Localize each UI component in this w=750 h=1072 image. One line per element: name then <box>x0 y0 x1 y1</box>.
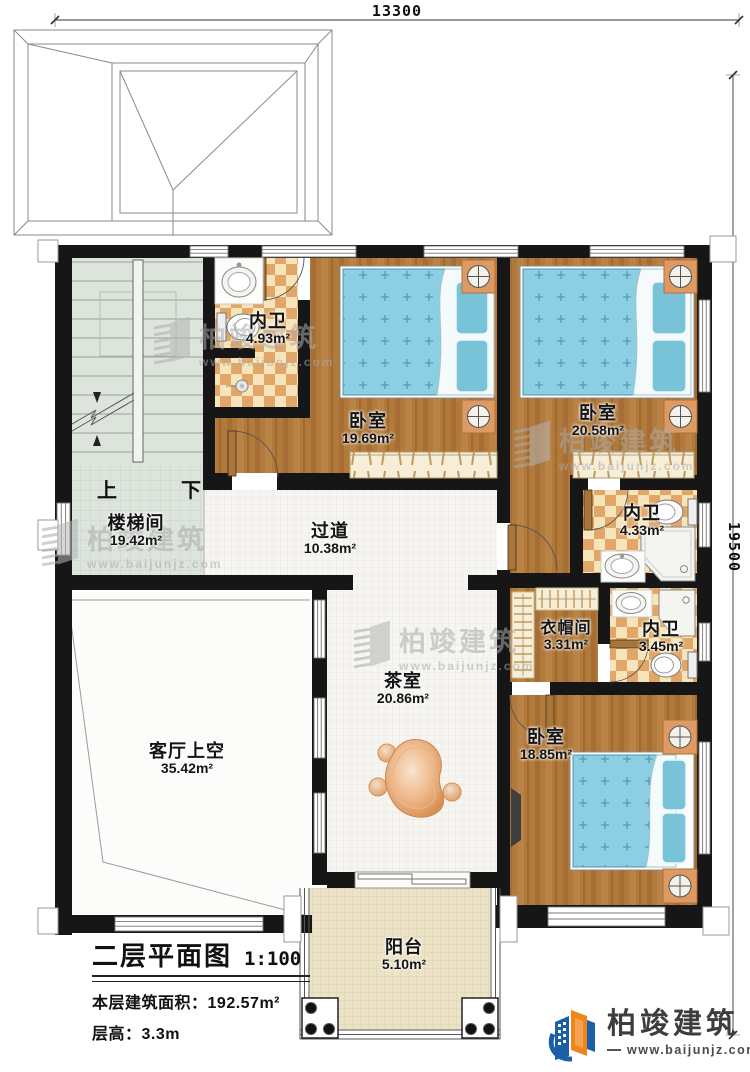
room-label-bedroom-1: 卧室19.69m² <box>342 412 394 447</box>
nightstand <box>664 260 697 293</box>
window <box>57 503 70 555</box>
nightstand <box>664 400 697 433</box>
window <box>424 246 518 257</box>
company-logo-text: 柏竣建筑 <box>607 1010 750 1039</box>
tea-room-floor <box>327 590 497 872</box>
window <box>699 623 710 661</box>
window <box>699 503 710 547</box>
nightstand <box>462 400 495 433</box>
room-label-tea-room: 茶室20.86m² <box>377 672 429 707</box>
window <box>314 793 325 853</box>
logo-divider-line <box>607 1049 621 1051</box>
nightstand <box>462 260 495 293</box>
window <box>548 907 665 926</box>
room-label-bedroom-3: 卧室18.85m² <box>520 728 572 763</box>
sliding-door <box>355 872 470 888</box>
bath-2-sink <box>601 551 645 582</box>
floor-plan-page: 13300 19500 内卫4.93m² 卧室19.69m² 卧室20.58m²… <box>0 0 750 1072</box>
dimension-height-value: 19500 <box>725 516 743 578</box>
nightstand <box>663 869 697 903</box>
stairs-up-label: 上 <box>97 474 117 503</box>
room-label-bath-1: 内卫4.93m² <box>246 312 290 347</box>
wardrobe-2 <box>573 452 694 478</box>
title-block: 二层平面图 1:100 本层建筑面积：192.57m² 层高：3.3m <box>92 936 322 1044</box>
company-logo-icon <box>545 1004 599 1062</box>
stair-handrail <box>133 260 143 462</box>
bath-3-sink <box>612 590 652 617</box>
tea-stool <box>443 783 461 801</box>
window <box>699 300 710 392</box>
bedroom-1-entry-floor <box>212 418 310 473</box>
window <box>590 246 684 257</box>
dimension-width-value: 13300 <box>372 2 422 20</box>
floor-height-label: 层高： <box>92 1026 142 1043</box>
bedroom-1-door-leaf <box>228 431 236 476</box>
tv <box>511 788 521 847</box>
bedroom-2-alcove-floor <box>510 475 570 575</box>
wardrobe-1 <box>350 452 497 478</box>
window <box>314 600 325 658</box>
window <box>190 246 228 257</box>
bath-2-door-leaf <box>584 490 592 530</box>
room-label-bath-3: 内卫3.45m² <box>639 620 683 655</box>
room-label-bath-2: 内卫4.33m² <box>620 504 664 539</box>
floor-area-value: 192.57m² <box>208 995 281 1012</box>
plan-title: 二层平面图 <box>92 936 232 973</box>
room-label-stairwell: 楼梯间19.42m² <box>108 514 165 549</box>
title-underline <box>92 975 310 982</box>
plan-scale: 1:100 <box>244 948 301 970</box>
stairs-down-label: 下 <box>181 474 201 503</box>
company-logo-url: www.baijunjz.com <box>627 1043 750 1057</box>
tea-stool <box>369 778 387 796</box>
floor-height-value: 3.3m <box>142 1026 180 1043</box>
window <box>699 742 710 854</box>
room-label-balcony: 阳台5.10m² <box>382 938 426 973</box>
bath-3-toilet <box>651 652 697 678</box>
roof-outline <box>14 30 332 235</box>
floor-area-label: 本层建筑面积： <box>92 995 208 1012</box>
window <box>115 917 263 931</box>
room-label-corridor: 过道10.38m² <box>304 522 356 557</box>
bedroom-2-door-leaf <box>508 525 516 570</box>
window <box>262 246 356 257</box>
window <box>314 698 325 758</box>
bed-3 <box>570 752 694 870</box>
bath-1-sink <box>215 258 263 304</box>
company-logo: 柏竣建筑 www.baijunjz.com <box>545 1004 750 1062</box>
room-label-bedroom-2: 卧室20.58m² <box>572 404 624 439</box>
room-label-living-void: 客厅上空35.42m² <box>149 742 225 777</box>
balcony-post <box>462 998 498 1038</box>
room-label-cloakroom: 衣帽间3.31m² <box>540 620 591 652</box>
nightstand <box>663 720 697 754</box>
